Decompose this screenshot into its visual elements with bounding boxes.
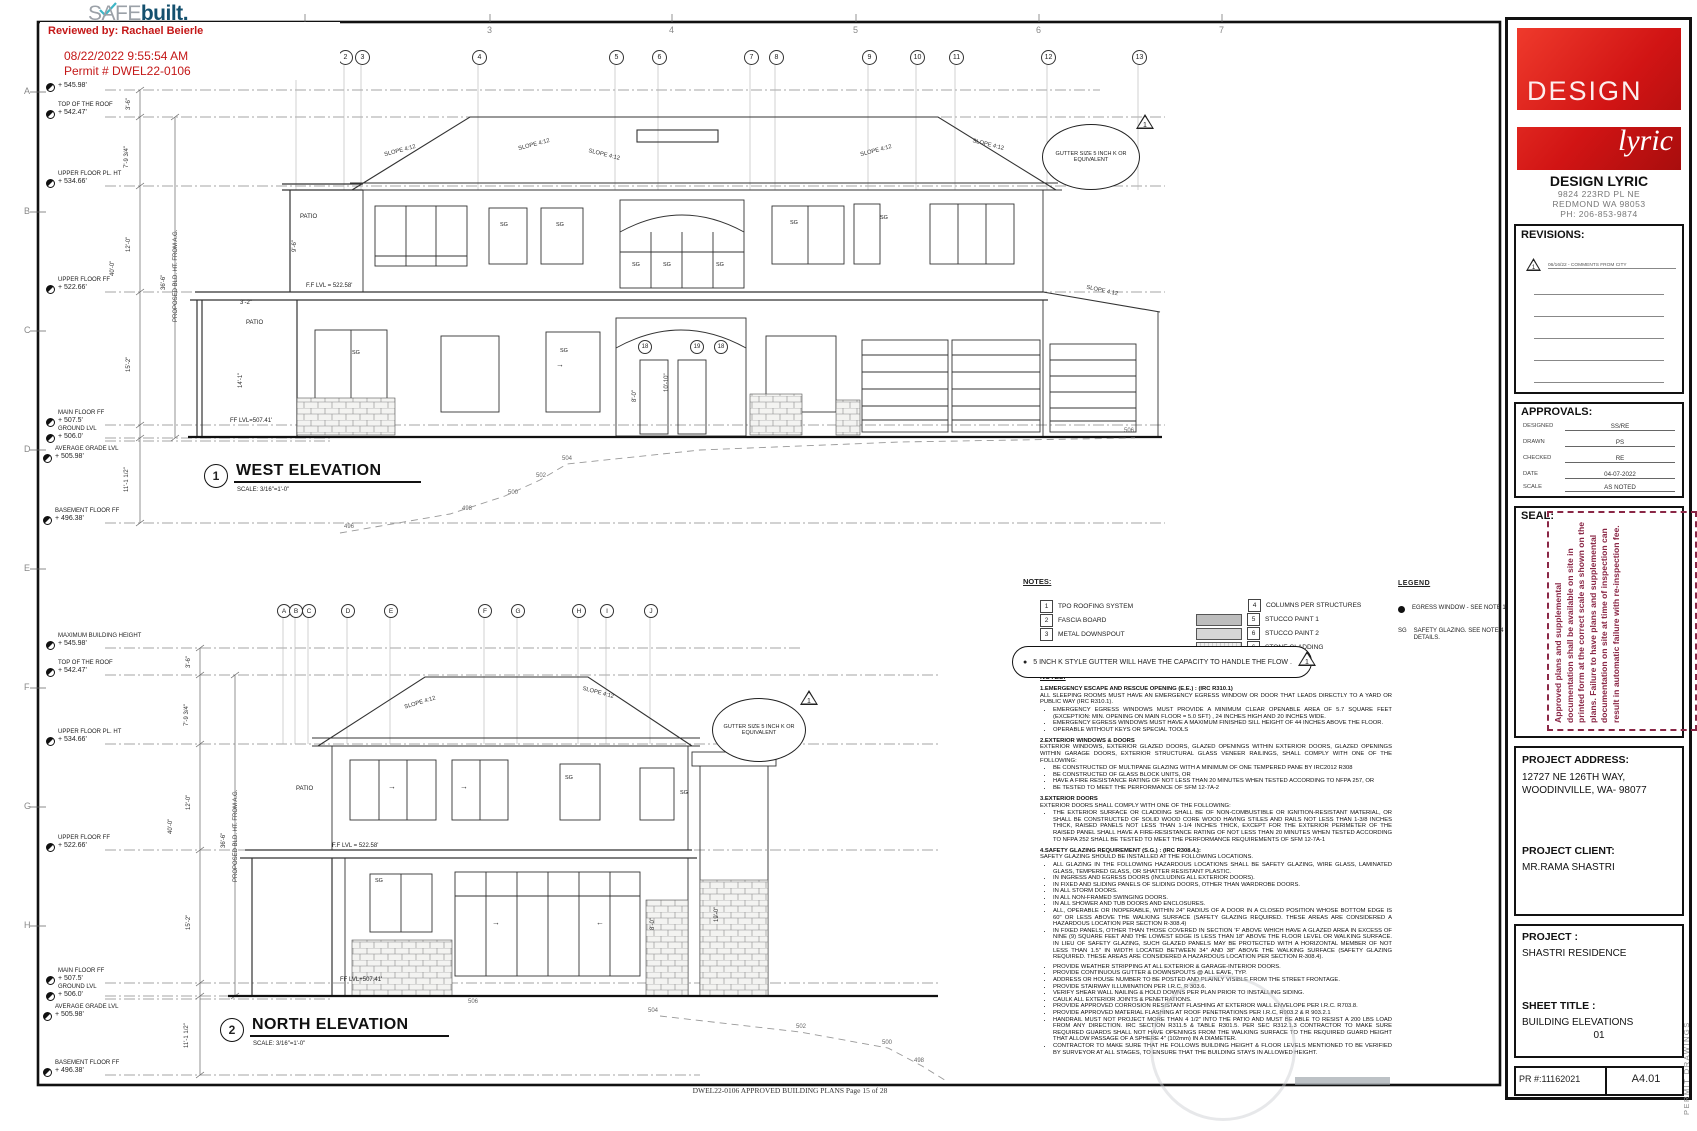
contour-label: 498 (462, 506, 472, 512)
patio-label: PATIO (300, 214, 317, 221)
window-number-bubble: 18 (714, 340, 728, 354)
project-address-title: PROJECT ADDRESS: (1522, 754, 1629, 766)
level-label: GROUND LVL+ 506.0' (58, 984, 176, 999)
firm-address: 9824 223RD PL NE (1517, 189, 1681, 199)
column-bubble: B (289, 604, 303, 618)
level-label: BASEMENT FLOOR FF+ 496.38' (55, 508, 135, 523)
column-bubble: 12 (1041, 50, 1056, 65)
revision-triangle-icon: 1 (1526, 258, 1541, 271)
note-heading: 3.EXTERIOR DOORS (1040, 796, 1392, 803)
approvals-title: APPROVALS: (1521, 406, 1592, 418)
column-bubble: H (572, 604, 586, 618)
column-bubble: G (511, 604, 525, 618)
sg-label: SG (565, 775, 573, 781)
column-bubble: E (384, 604, 398, 618)
dim-label: 12'-0" (186, 795, 192, 810)
contour-label: 498 (914, 1058, 924, 1064)
column-bubble: F (478, 604, 492, 618)
review-stamp: Reviewed by: Rachael Beierle 08/22/2022 … (40, 22, 340, 80)
note-list: THE EXTERIOR SURFACE OR CLADDING SHALL B… (1053, 810, 1392, 843)
level-marker-icon (46, 668, 55, 677)
west-elevation-number: 1 (204, 464, 228, 488)
sg-label: SG (680, 790, 688, 796)
column-bubble: 7 (744, 50, 759, 65)
level-label: MAIN FLOOR FF+ 507.5' (58, 410, 176, 425)
sg-label: SG (500, 222, 508, 228)
logo-design-text: DESIGN (1527, 76, 1643, 107)
slide-arrow-icon: ← (596, 918, 604, 927)
dim-label: PROPOSED BLD. HT. FROM A.G. (233, 790, 239, 882)
level-marker-icon (46, 418, 55, 427)
level-marker-icon (46, 992, 55, 1001)
dim-label: 11'-1 1/2" (124, 467, 130, 492)
page-footer: DWEL22-0106 APPROVED BUILDING PLANS Page… (620, 1086, 960, 1095)
note-heading: 2.EXTERIOR WINDOWS & DOORS (1040, 738, 1392, 745)
note-list: BE CONSTRUCTED OF MULTIPANE GLAZING WITH… (1053, 765, 1392, 791)
plan-sheet: SAFEbuilt. Reviewed by: Rachael Beierle … (0, 0, 1697, 1131)
contour-label: 506 (468, 999, 478, 1005)
key-text: STUCCO PAINT 1 (1265, 616, 1319, 623)
key-text: METAL DOWNSPOUT (1058, 631, 1125, 638)
dim-label: 15'-2" (126, 357, 132, 372)
logo-lyric-text: lyric (1618, 124, 1673, 158)
key-text: TPO ROOFING SYSTEM (1058, 603, 1133, 610)
slide-arrow-icon: → (492, 918, 500, 927)
dim-label: 11'-1 1/2" (184, 1023, 190, 1048)
revision-blank-line (1534, 382, 1664, 383)
sg-label: SG (790, 220, 798, 226)
key-number: 4 (1248, 599, 1261, 612)
key-number: 5 (1247, 613, 1260, 626)
contour-label: 502 (796, 1024, 806, 1030)
project-title-label: PROJECT : (1522, 931, 1578, 943)
contour-label: 504 (562, 456, 572, 462)
column-bubble: 3 (355, 50, 370, 65)
dim-label: 36'-6" (161, 275, 167, 290)
column-bubble: 6 (652, 50, 667, 65)
revision-triangle-icon: 1 (1298, 651, 1316, 666)
column-bubble: J (644, 604, 658, 618)
bullet-icon: ● (1023, 659, 1027, 666)
west-elevation-scale: SCALE: 3/16"=1'-0" (237, 487, 289, 493)
grid-label: 6 (1036, 25, 1041, 35)
window-number-bubble: 18 (638, 340, 652, 354)
level-marker-icon (46, 434, 55, 443)
sg-label: SG (880, 215, 888, 221)
dim-label: 3'-6" (126, 98, 132, 110)
sg-symbol: SG (1398, 628, 1407, 642)
legend-egress-row: EGRESS WINDOW - SEE NOTE 1. (1398, 605, 1518, 613)
column-bubble: 13 (1132, 50, 1147, 65)
stucco2-swatch (1196, 628, 1242, 640)
notes-key-title: NOTES: (1023, 578, 1051, 586)
slide-arrow-icon: → (388, 782, 396, 791)
column-bubble: 10 (910, 50, 925, 65)
level-label: MAXIMUM BUILDING HEIGHT+ 545.98' (58, 633, 176, 648)
grid-label: F (24, 682, 30, 692)
sg-label: SG (556, 222, 564, 228)
note-body: EXTERIOR DOORS SHALL COMPLY WITH ONE OF … (1040, 803, 1392, 810)
note-heading: 1.EMERGENCY ESCAPE AND RESCUE OPENING (E… (1040, 686, 1392, 693)
revision-triangle-icon: 1 (800, 690, 818, 705)
level-label: AVERAGE GRADE LVL+ 505.98' (55, 1004, 135, 1019)
column-bubble: 2 (338, 50, 353, 65)
dim-label: 12'-0" (126, 237, 132, 252)
grid-label: B (24, 206, 30, 216)
column-bubble: I (600, 604, 614, 618)
note-body: ALL SLEEPING ROOMS MUST HAVE AN EMERGENC… (1040, 693, 1392, 706)
grid-label: A (24, 86, 30, 96)
contour-label: 500 (882, 1040, 892, 1046)
sg-label: SG (560, 348, 568, 354)
sg-label: SG (632, 262, 640, 268)
project-address-line: 12727 NE 126TH WAY, (1522, 772, 1625, 783)
project-address-line: WOODINVILLE, WA- 98077 (1522, 785, 1647, 796)
sheet-title-name: BUILDING ELEVATIONS (1522, 1017, 1633, 1028)
level-label: AVERAGE GRADE LVL+ 505.98' (55, 446, 135, 461)
firm-phone: PH: 206-853-9874 (1517, 209, 1681, 219)
revisions-box (1514, 224, 1684, 394)
level-label: TOP OF THE ROOF+ 542.47' (58, 660, 176, 675)
dim-label: 8'-0" (632, 390, 638, 402)
key-number: 2 (1040, 614, 1053, 627)
column-bubble: 4 (472, 50, 487, 65)
contour-label: 502 (536, 473, 546, 479)
project-client-name: MR.RAMA SHASTRI (1522, 862, 1615, 873)
revision-blank-line (1534, 338, 1664, 339)
dim-label: 3'-6" (186, 656, 192, 668)
note-body: SAFETY GLAZING SHOULD BE INSTALLED AT TH… (1040, 854, 1392, 861)
firm-address: REDMOND WA 98053 (1517, 199, 1681, 209)
gutter-capacity-note: ● 5 INCH K STYLE GUTTER WILL HAVE THE CA… (1012, 646, 1312, 678)
grid-label: H (24, 920, 31, 930)
level-marker-icon (43, 1012, 52, 1021)
sg-label: SG (716, 262, 724, 268)
dim-label: 40'-0" (168, 819, 174, 834)
west-elevation-title: WEST ELEVATION (234, 462, 421, 483)
dim-label: 15'-2" (186, 915, 192, 930)
level-label: BASEMENT FLOOR FF+ 496.38' (55, 1060, 135, 1075)
dim-label: 3'-2" (240, 300, 252, 307)
grid-label: 5 (853, 25, 858, 35)
grid-label: G (24, 801, 31, 811)
project-client-title: PROJECT CLIENT: (1522, 845, 1615, 857)
revisions-title: REVISIONS: (1521, 229, 1585, 241)
key-text: COLUMNS PER STRUCTURES (1266, 602, 1361, 609)
level-label: GROUND LVL+ 506.0' (58, 426, 176, 441)
level-marker-icon (46, 285, 55, 294)
grid-label: 4 (669, 25, 674, 35)
key-number: 3 (1040, 628, 1053, 641)
grid-label: 7 (1219, 25, 1224, 35)
note-list: EMERGENCY EGRESS WINDOWS MUST PROVIDE A … (1053, 707, 1392, 733)
ff-level-label: F.F LVL = 522.58' (306, 283, 352, 290)
level-label: TOP OF THE ROOF+ 542.47' (58, 102, 176, 117)
column-bubble: 8 (769, 50, 784, 65)
column-bubble: C (302, 604, 316, 618)
sheet-title-label: SHEET TITLE : (1522, 1000, 1596, 1012)
dim-label: PROPOSED BLD. HT. FROM A.G. (173, 230, 179, 322)
north-elevation-number: 2 (220, 1018, 244, 1042)
dim-label: 7'-9 3/4" (184, 704, 190, 726)
design-lyric-logo: DESIGN lyric (1517, 28, 1681, 170)
revision-blank-line (1534, 360, 1664, 361)
sg-label: SG (663, 262, 671, 268)
watermark-circle (1150, 975, 1296, 1121)
sg-label: SG (352, 350, 360, 356)
revision-blank-line (1534, 316, 1664, 317)
legend-title: LEGEND (1398, 580, 1430, 588)
level-marker-icon (46, 110, 55, 119)
level-marker-icon (46, 83, 55, 92)
sg-label: SG (375, 878, 383, 884)
stucco1-swatch (1196, 614, 1242, 626)
sheet-title-number: 01 (1514, 1030, 1684, 1041)
level-marker-icon (46, 843, 55, 852)
dim-label: 10'-10" (664, 373, 670, 392)
note-list: ALL GLAZING IN THE FOLLOWING HAZARDOUS L… (1053, 862, 1392, 961)
north-elevation-title: NORTH ELEVATION (250, 1016, 449, 1037)
note-heading: 4.SAFETY GLAZING REQUIREMENT (S.G.) : (I… (1040, 848, 1392, 855)
level-label: UPPER FLOOR FF+ 522.66' (58, 277, 176, 292)
north-elevation-scale: SCALE: 3/16"=1'-0" (253, 1041, 305, 1047)
level-marker-icon (43, 1068, 52, 1077)
firm-name: DESIGN LYRIC (1517, 173, 1681, 189)
column-bubble: 9 (862, 50, 877, 65)
pr-divider (1605, 1066, 1607, 1096)
egress-dot-icon (1398, 606, 1405, 613)
level-marker-icon (43, 454, 52, 463)
slide-arrow-icon: → (460, 782, 468, 791)
level-label: MAIN FLOOR FF+ 507.5' (58, 968, 176, 983)
contour-label: 506 (1124, 428, 1134, 434)
dim-label: 8'-0" (650, 918, 656, 930)
permit-drawings-side-text: PERMIT DRAWINGS (1682, 995, 1691, 1115)
watermark-bar (1295, 1077, 1390, 1085)
gutter-note-cloud: GUTTER SIZE 5 INCH K OR EQUIVALENT (712, 698, 806, 762)
dim-label: 9'-6" (292, 240, 298, 252)
level-marker-icon (43, 516, 52, 525)
pr-number: PR #:11162021 (1519, 1074, 1580, 1084)
window-number-bubble: 19 (690, 340, 704, 354)
column-bubble: 5 (609, 50, 624, 65)
note-body: EXTERIOR WINDOWS, EXTERIOR GLAZED DOORS,… (1040, 744, 1392, 764)
key-text: STUCCO PAINT 2 (1265, 630, 1319, 637)
revision-entry: 06/16/22 - COMMENTS FROM CITY (1548, 263, 1676, 269)
dim-label: 7'-9 3/4" (124, 146, 130, 168)
project-name: SHASTRI RESIDENCE (1522, 948, 1626, 959)
ff-level-label: FF LVL+507.41' (340, 977, 382, 984)
column-bubble: 11 (949, 50, 964, 65)
level-marker-icon (46, 976, 55, 985)
column-bubble: D (341, 604, 355, 618)
level-label: UPPER FLOOR PL. HT+ 534.66' (58, 729, 176, 744)
level-marker-icon (46, 737, 55, 746)
patio-label: PATIO (246, 320, 263, 327)
grid-label: E (24, 563, 30, 573)
review-datetime: 08/22/2022 9:55:54 AM (64, 49, 188, 63)
ff-level-label: F.F LVL = 522.58' (332, 843, 378, 850)
contour-label: 500 (508, 490, 518, 496)
ff-level-label: FF LVL=507.41' (230, 418, 272, 425)
grid-label: D (24, 444, 31, 454)
revision-blank-line (1534, 294, 1664, 295)
patio-label: PATIO (296, 786, 313, 793)
contour-label: 496 (344, 524, 354, 530)
dim-label: 36'-6" (221, 833, 227, 848)
grid-label: C (24, 325, 31, 335)
legend-sg-row: SGSAFETY GLAZING. SEE NOTE 4 FOR DETAILS… (1398, 628, 1518, 642)
level-label: UPPER FLOOR FF+ 522.66' (58, 835, 176, 850)
slide-arrow-icon: → (556, 360, 564, 369)
permit-number: Permit # DWEL22-0106 (64, 64, 191, 78)
revision-triangle-icon: 1 (1136, 114, 1154, 129)
dim-label: 19'-0" (714, 907, 720, 922)
sheet-number: A4.01 (1608, 1073, 1684, 1085)
level-marker-icon (46, 179, 55, 188)
approval-stamp: Approved plans and supplemental document… (1547, 511, 1697, 731)
reviewed-by-text: Reviewed by: Rachael Beierle (48, 25, 203, 37)
key-text: FASCIA BOARD (1058, 617, 1106, 624)
gutter-note-cloud: GUTTER SIZE 5 INCH K OR EQUIVALENT (1042, 124, 1140, 190)
drawing-linework (0, 0, 1697, 1131)
key-number: 1 (1040, 600, 1053, 613)
key-number: 6 (1247, 627, 1260, 640)
contour-label: 504 (648, 1008, 658, 1014)
level-marker-icon (46, 641, 55, 650)
dim-label: 40'-0" (110, 261, 116, 276)
level-label: UPPER FLOOR PL. HT+ 534.66' (58, 171, 176, 186)
grid-label: 3 (487, 25, 492, 35)
dim-label: 14'-1" (238, 373, 244, 388)
